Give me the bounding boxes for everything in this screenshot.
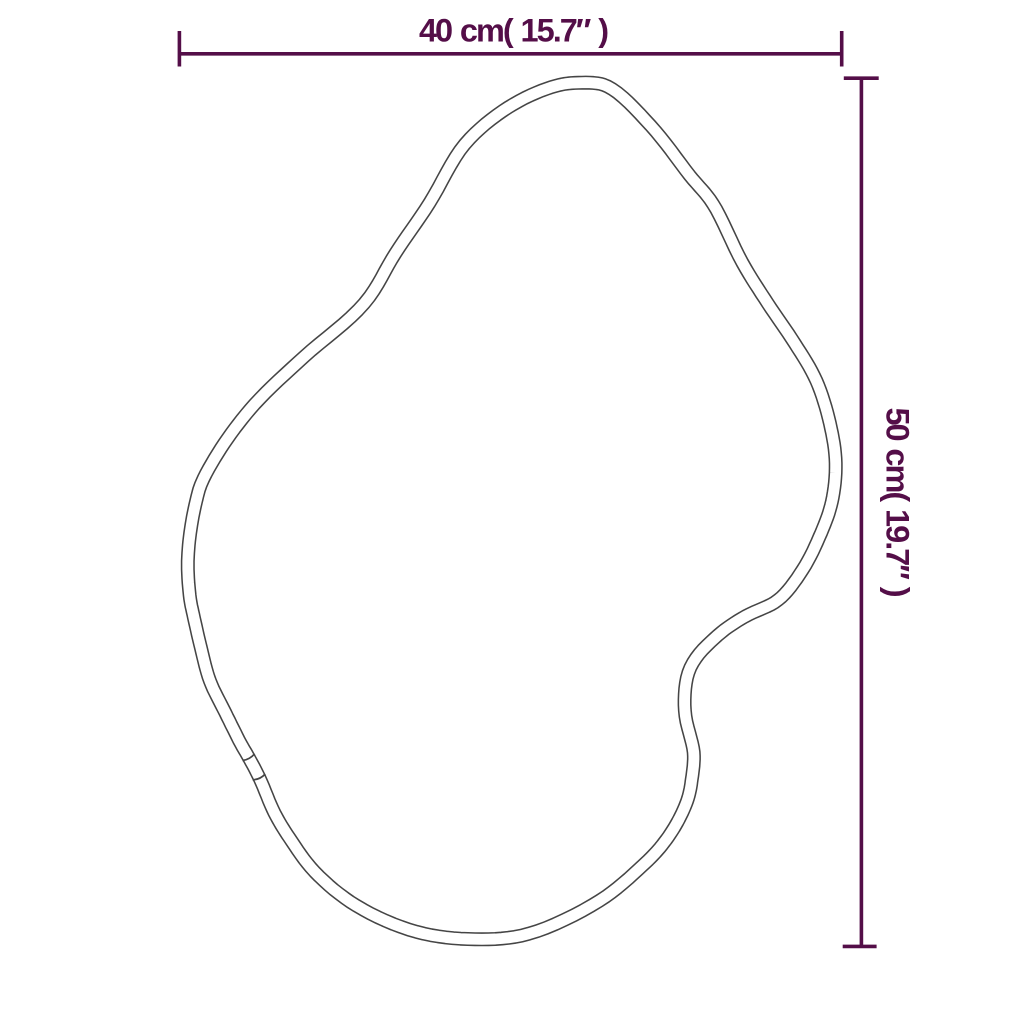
svg-text:40 cm( 15.7″ ): 40 cm( 15.7″ ) <box>419 13 608 49</box>
svg-text:50 cm( 19.7″ ): 50 cm( 19.7″ ) <box>880 407 916 596</box>
